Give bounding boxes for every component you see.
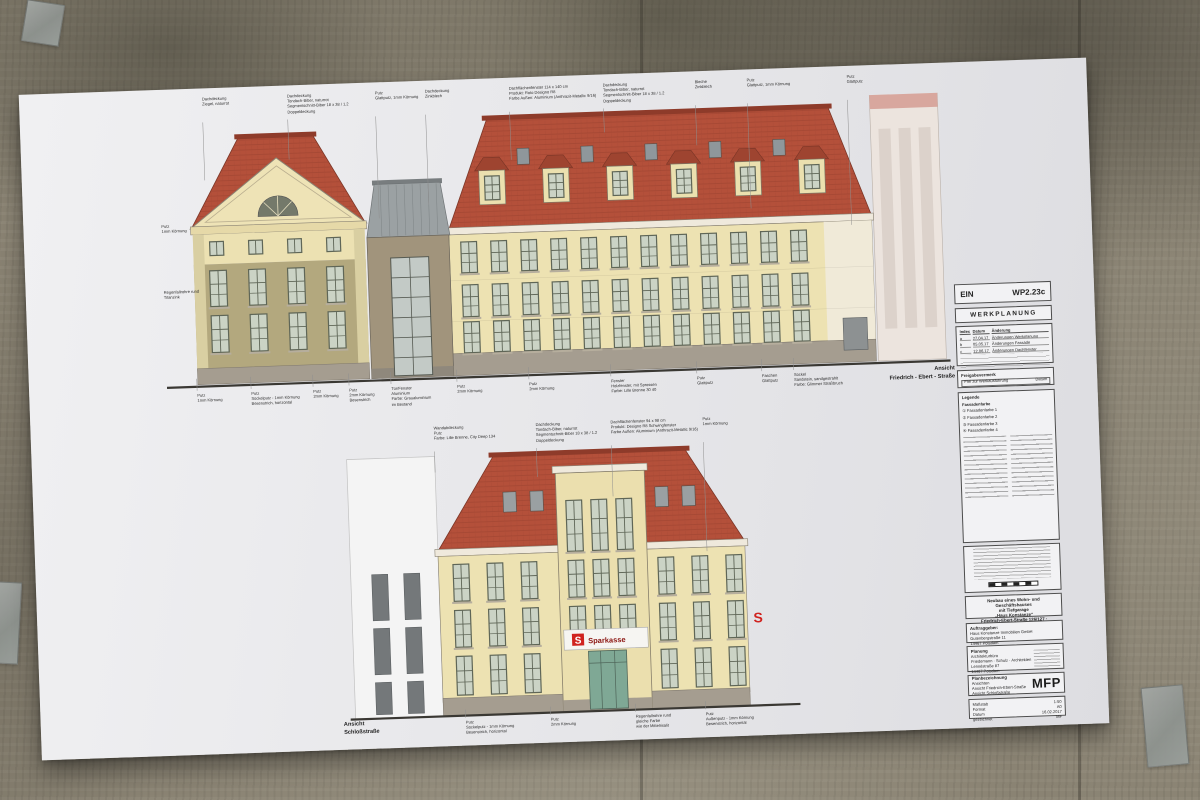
plan-type-label: WERKPLANUNG — [970, 309, 1037, 318]
tape-left — [0, 581, 22, 664]
annotation-line: im Bestand — [392, 400, 432, 407]
annotation-line: Glattputz — [697, 380, 713, 386]
annotation-block: Dachflächenfenster 94 x 98 cmProdukt: De… — [610, 416, 698, 435]
annotation-line: Glattputz, 1mm Körnung — [747, 81, 791, 88]
release-box: Freigabevermerk Frei zur Werkausführung … — [957, 367, 1055, 388]
annotation-layer: DachdeckungZiegel, naturrotDachdeckungTo… — [19, 58, 1110, 761]
revision-cell: c — [960, 349, 971, 355]
annotation-block: FensterHolzfenster, mit SprossenFarbe: L… — [611, 377, 657, 394]
planner-box: Planung ArchitekturbüroFriedemann · Schu… — [967, 643, 1065, 672]
release-date-label: Datum — [1035, 376, 1047, 381]
tape-right — [1141, 684, 1190, 767]
annotation-block: Tür/FensterAluminiumFarbe: Graualuminium… — [391, 385, 431, 407]
scale-bar — [988, 581, 1038, 587]
concrete-wall: S Sparkasse S DachdeckungZiegel, naturro… — [0, 0, 1200, 800]
annotation-block: WandabdeckungPutzFarbe: Lille Brenne, Ci… — [433, 423, 495, 441]
revision-cell: b — [960, 342, 971, 348]
annotation-line: Glattputz, 1mm Körnung — [375, 94, 419, 101]
annotation-block: PutzGlattputz, 1mm Körnung — [375, 89, 419, 101]
annotation-line: Glattputz — [762, 378, 778, 384]
info-label: gezeichnet — [973, 716, 993, 722]
annotation-block: Putz2mm KörnungBesenstrich — [349, 387, 375, 403]
revision-cell: 27.04.17 — [973, 335, 990, 341]
annotation-line: 1mm Körnung — [161, 228, 186, 234]
annotation-line: Ziegel, naturrot — [202, 101, 229, 107]
annotation-line: Zinkblech — [695, 84, 712, 90]
client-box: Auftraggeber: Haus Konstanze Immobilien … — [966, 620, 1064, 643]
abbreviation-list — [963, 434, 1054, 499]
annotation-line: 2mm Körnung — [457, 388, 482, 394]
annotation-block: Regenfallrohre rundTitanzink — [164, 289, 200, 301]
annotation-block: Putz1mm Körnung — [161, 223, 186, 234]
annotation-block: PutzGlattputz — [697, 375, 713, 386]
annotation-block: Regenfallrohre rundgleiche Farbewie der … — [636, 712, 672, 729]
mfp-logo: MFP — [1032, 675, 1061, 691]
project-box: Neubau eines Wohn- und Geschäftshausesmi… — [965, 593, 1063, 619]
annotation-line: Zinkblech — [425, 93, 450, 99]
annotation-block: PutzSockelputz - 1mm KörnungBesenstrich,… — [251, 389, 300, 406]
annotation-block: PutzAußenputz - 1mm KörnungBesenstrich, … — [706, 710, 755, 727]
annotation-line: Besenstrich — [349, 397, 374, 403]
plan-code-left: EIN — [960, 289, 974, 298]
annotation-block: DachdeckungTondach-Biber, naturrotSegmen… — [535, 420, 597, 443]
annotation-line: Farbe: Lille Brenne, City Deep 134 — [434, 434, 496, 441]
tape-top-left — [21, 0, 65, 47]
annotation-line: Glattputz — [847, 79, 863, 85]
annotation-block: DachdeckungZinkblech — [425, 88, 450, 99]
annotation-line: Titanzink — [164, 294, 200, 300]
revision-cell: a — [960, 335, 971, 341]
annotation-block: DachdeckungTondach-Biber, naturrotSegmen… — [287, 91, 349, 114]
revision-cell: 12.06.17 — [973, 348, 990, 354]
annotation-block: FaschenGlattputz — [762, 373, 778, 384]
info-value: MF — [1056, 714, 1062, 719]
annotation-block: Putz2mm Körnung — [313, 388, 338, 399]
notes-box — [963, 543, 1062, 593]
annotation-block: PutzGlattputz, 1mm Körnung — [747, 76, 791, 88]
annotation-block: BlecheZinkblech — [695, 79, 712, 90]
plan-code-right: WP2.23c — [1012, 287, 1045, 297]
legend-box: Legende Fassadenfarbe ① Fassadenfarbe 1②… — [958, 389, 1060, 543]
annotation-line: Besenstrich, horizontal — [252, 400, 300, 407]
annotation-block: Putz2mm Körnung — [551, 716, 576, 727]
legend-item: ④ Fassadenfarbe 4 — [963, 425, 1052, 433]
revision-table: IndexDatumÄnderunga27.04.17Änderungen We… — [955, 323, 1053, 366]
plan-info-box: Maßstab1:50FormatA0Datum16.02.2017gezeic… — [968, 696, 1066, 719]
revision-header: Datum — [972, 328, 989, 334]
notes-text — [973, 546, 1051, 580]
annotation-block: SockelSandstein, sandgestrahltFarbe: Gli… — [794, 370, 843, 387]
annotation-block: Putz2mm Körnung — [529, 380, 554, 391]
annotation-block: DachdeckungTondach-Biber, naturrotSegmen… — [603, 80, 665, 103]
annotation-block: PutzGlattputz — [846, 73, 862, 84]
annotation-line: Besenstrich, horizontal — [706, 720, 754, 727]
annotation-block: DachdeckungZiegel, naturrot — [202, 96, 229, 107]
annotation-block: Putz1mm Körnung — [197, 392, 222, 403]
annotation-line: 2mm Körnung — [313, 393, 338, 399]
annotation-line: 1mm Körnung — [197, 397, 222, 403]
revision-cell: 05.05.17 — [973, 341, 990, 347]
planner-contact — [1034, 649, 1061, 668]
annotation-block: PutzSockelputz - 1mm KörnungBesenstrich,… — [466, 718, 515, 735]
annotation-line: 2mm Körnung — [551, 721, 576, 727]
annotation-line: Farbe: Glimmer Straßbruch — [794, 381, 843, 388]
annotation-block: Dachflächenfenster 114 x 140 cmProdukt: … — [509, 83, 597, 102]
annotation-block: Putz2mm Körnung — [457, 383, 482, 394]
annotation-line: wie der Mittelrisalit — [636, 723, 672, 729]
plan-name-box: Planbezeichnung AnsichtenAnsicht Friedri… — [968, 672, 1066, 696]
annotation-line: 2mm Körnung — [529, 386, 554, 392]
annotation-block: Putz1mm Körnung — [702, 415, 727, 426]
release-line: Frei zur Werkausführung — [964, 377, 1008, 384]
plan-code-box: EIN WP2.23c — [954, 281, 1052, 304]
revision-header: Index — [959, 329, 970, 335]
annotation-line: Besenstrich, horizontal — [466, 728, 514, 735]
plan-sheet: S Sparkasse S DachdeckungZiegel, naturro… — [19, 58, 1110, 761]
annotation-line: 1mm Körnung — [703, 420, 728, 426]
annotation-line: Farbe: Lille Brenne 30 40 — [611, 387, 657, 394]
